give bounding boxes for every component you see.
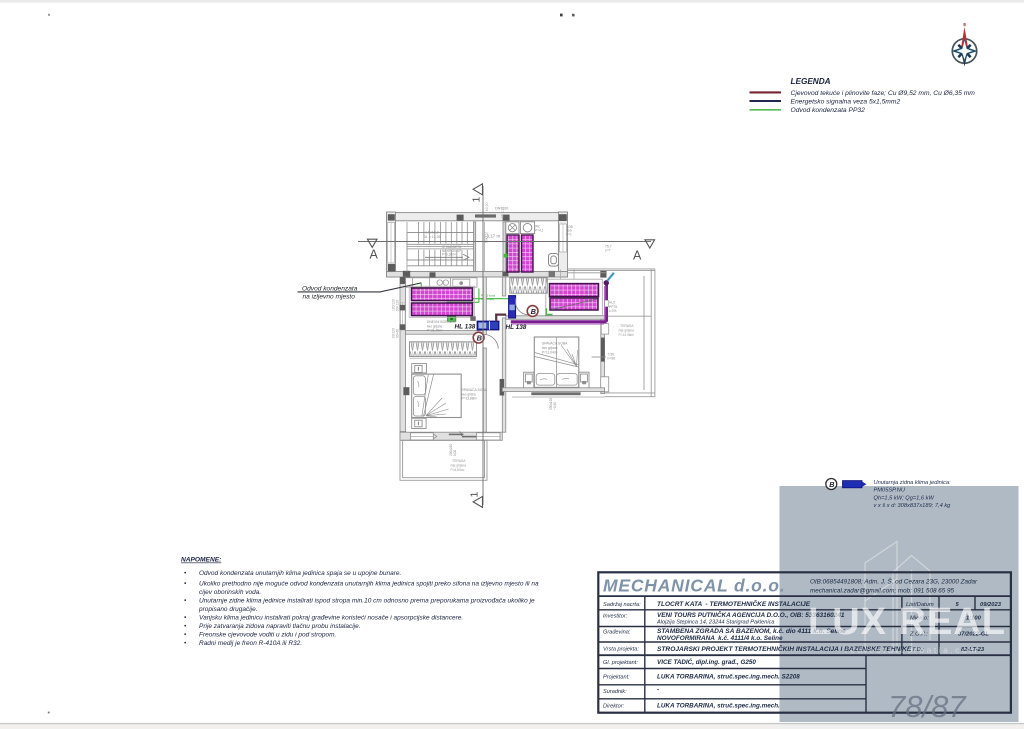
- svg-text:0,00: 0,00: [453, 450, 457, 456]
- svg-text:Odvod kondenzata: Odvod kondenzata: [302, 285, 358, 292]
- svg-text:SPAVAĆA SOBA: SPAVAĆA SOBA: [462, 387, 488, 392]
- svg-text:B: B: [477, 333, 483, 342]
- svg-text:Energetsko signalna veza 5x1,5: Energetsko signalna veza 5x1,5mm2: [791, 99, 901, 106]
- svg-text:P=13,88m²: P=13,88m²: [462, 397, 478, 401]
- svg-text:NAPOMENE:: NAPOMENE:: [181, 557, 221, 564]
- svg-text:LEGENDA: LEGENDA: [791, 77, 831, 86]
- svg-text:NOVOFORMIRANA k.č. 4111/4 k.o: NOVOFORMIRANA k.č. 4111/4 k.o. Seline: [657, 635, 783, 642]
- svg-text:P=4,1: P=4,1: [535, 228, 544, 232]
- svg-text:±0,00: ±0,00: [485, 202, 489, 211]
- svg-text:A: A: [370, 248, 379, 262]
- svg-text:+0,90: +0,90: [553, 402, 557, 410]
- svg-text:TERASA: TERASA: [620, 324, 634, 328]
- svg-text:Projektant:: Projektant:: [603, 674, 630, 680]
- svg-text:LUKA TORBARINA, struč.spec.ing: LUKA TORBARINA, struč.spec.ing.mech. S22…: [657, 673, 800, 680]
- svg-text:P=14,46m²: P=14,46m²: [619, 333, 635, 337]
- svg-text:propisano drugačije.: propisano drugačije.: [198, 606, 258, 613]
- svg-text:mechanical.zadar@gmail.com; mo: mechanical.zadar@gmail.com; mob: 091 508…: [810, 587, 954, 594]
- svg-text:Odvod kondenzata PP32: Odvod kondenzata PP32: [791, 107, 866, 114]
- svg-text:Qh=1,5 kW; Qg=1,6 kW: Qh=1,5 kW; Qg=1,6 kW: [874, 495, 935, 501]
- svg-text:P=1: P=1: [566, 232, 572, 236]
- svg-text:Prije zatvaranja zidova naprav: Prije zatvaranja zidova napraviti tlačnu…: [199, 623, 361, 630]
- svg-text:Investitor:: Investitor:: [603, 614, 628, 620]
- svg-text:h=90: h=90: [608, 357, 616, 361]
- svg-text:1: 1: [469, 492, 481, 498]
- svg-text:Direktor:: Direktor:: [603, 704, 625, 710]
- svg-text:78/87: 78/87: [888, 689, 967, 724]
- svg-text:VICE TADIĆ, dipl.ing. građ., G: VICE TADIĆ, dipl.ing. građ., G250: [657, 657, 756, 666]
- svg-text:Vanjsku klima jedinicu instali: Vanjsku klima jedinicu instalirati pokra…: [199, 615, 463, 622]
- svg-text:LUKA TORBARINA, struč.spec.ing: LUKA TORBARINA, struč.spec.ing.mech.: [657, 703, 780, 710]
- svg-text:Alojzija Stepinca 14, 23244 St: Alojzija Stepinca 14, 23244 Starigrad Pa…: [656, 620, 775, 626]
- svg-text:v x š x d: 308x837x189; 7,4 kg: v x š x d: 308x837x189; 7,4 kg: [874, 503, 952, 509]
- svg-text:A: A: [633, 249, 642, 263]
- svg-text:TERASA: TERASA: [452, 459, 466, 463]
- svg-text:nije grijana: nije grijana: [619, 329, 635, 333]
- svg-text:Unutarnja zidna klima jedinica: Unutarnja zidna klima jedinica:: [874, 480, 952, 486]
- svg-text:-: -: [657, 687, 659, 694]
- svg-text:1.5x18.2: 1.5x18.2: [425, 230, 439, 234]
- svg-text:cijev oborinskih voda.: cijev oborinskih voda.: [199, 589, 261, 596]
- svg-text:B: B: [531, 307, 537, 316]
- svg-text:z=7: z=7: [605, 248, 611, 252]
- svg-text:SPAVAĆA SOBA: SPAVAĆA SOBA: [542, 341, 568, 346]
- svg-text:Vrsta projekta:: Vrsta projekta:: [603, 647, 639, 653]
- svg-text:P=11,64m²: P=11,64m²: [542, 350, 557, 354]
- svg-text:realestatecroatia.com: realestatecroatia.com: [845, 645, 979, 655]
- svg-text:P=6,38m²: P=6,38m²: [442, 252, 456, 256]
- svg-text:HL 138: HL 138: [506, 324, 527, 331]
- svg-text:Cjevovod tekuće i plinovite fa: Cjevovod tekuće i plinovite faze; Cu Ø9,…: [791, 90, 976, 97]
- svg-text:two grijana: two grijana: [542, 346, 558, 350]
- svg-text:Unutarnje zidne klima jedinice: Unutarnje zidne klima jedinice instalira…: [199, 598, 535, 605]
- svg-text:Građevina:: Građevina:: [603, 630, 631, 636]
- svg-text:Freonske cjevovode voditi u zi: Freonske cjevovode voditi u zidu i pod s…: [199, 632, 336, 639]
- svg-text:Odvod kondenzata unutarnjih kl: Odvod kondenzata unutarnjih klima jedini…: [199, 570, 402, 577]
- svg-text:OIB:06854491808; Adm. J. Š. od: OIB:06854491808; Adm. J. Š. od Cezara 23…: [810, 577, 978, 586]
- svg-text:MECHANICAL d.o.o.: MECHANICAL d.o.o.: [603, 576, 785, 596]
- svg-text:i=3%: i=3%: [609, 309, 616, 313]
- svg-text:11 x 17,35: 11 x 17,35: [424, 235, 441, 239]
- svg-text:P=6,63m²: P=6,63m²: [451, 468, 465, 472]
- svg-text:15 2,10: 15 2,10: [501, 207, 505, 218]
- svg-text:B: B: [829, 480, 834, 489]
- svg-text:Ukoliko prethodno nije moguće: Ukoliko prethodno nije moguće odvod kond…: [199, 581, 539, 588]
- svg-text:Sadržaj nacrta:: Sadržaj nacrta:: [603, 602, 641, 608]
- svg-text:HL 138: HL 138: [455, 323, 476, 330]
- svg-text:Suradnik:: Suradnik:: [603, 689, 627, 695]
- svg-text:P=21,48m²: P=21,48m²: [427, 329, 443, 333]
- svg-text:90+120: 90+120: [396, 300, 400, 311]
- svg-text:TLOCRT KATA - TERMOTEHNIČKE I: TLOCRT KATA - TERMOTEHNIČKE INSTALACIJE: [657, 599, 811, 608]
- svg-text:Radni medij je freon R-410A il: Radni medij je freon R-410A ili R32.: [199, 640, 302, 647]
- svg-text:LUX REAL: LUX REAL: [808, 601, 1006, 643]
- svg-text:1: 1: [471, 197, 483, 203]
- svg-text:nije grijana: nije grijana: [451, 464, 467, 468]
- svg-text:Gl. projektant:: Gl. projektant:: [603, 660, 638, 666]
- svg-text:PM05SP.NU: PM05SP.NU: [874, 488, 906, 494]
- svg-text:90+60: 90+60: [396, 329, 400, 338]
- svg-text:na izljevno mjesto: na izljevno mjesto: [303, 293, 356, 300]
